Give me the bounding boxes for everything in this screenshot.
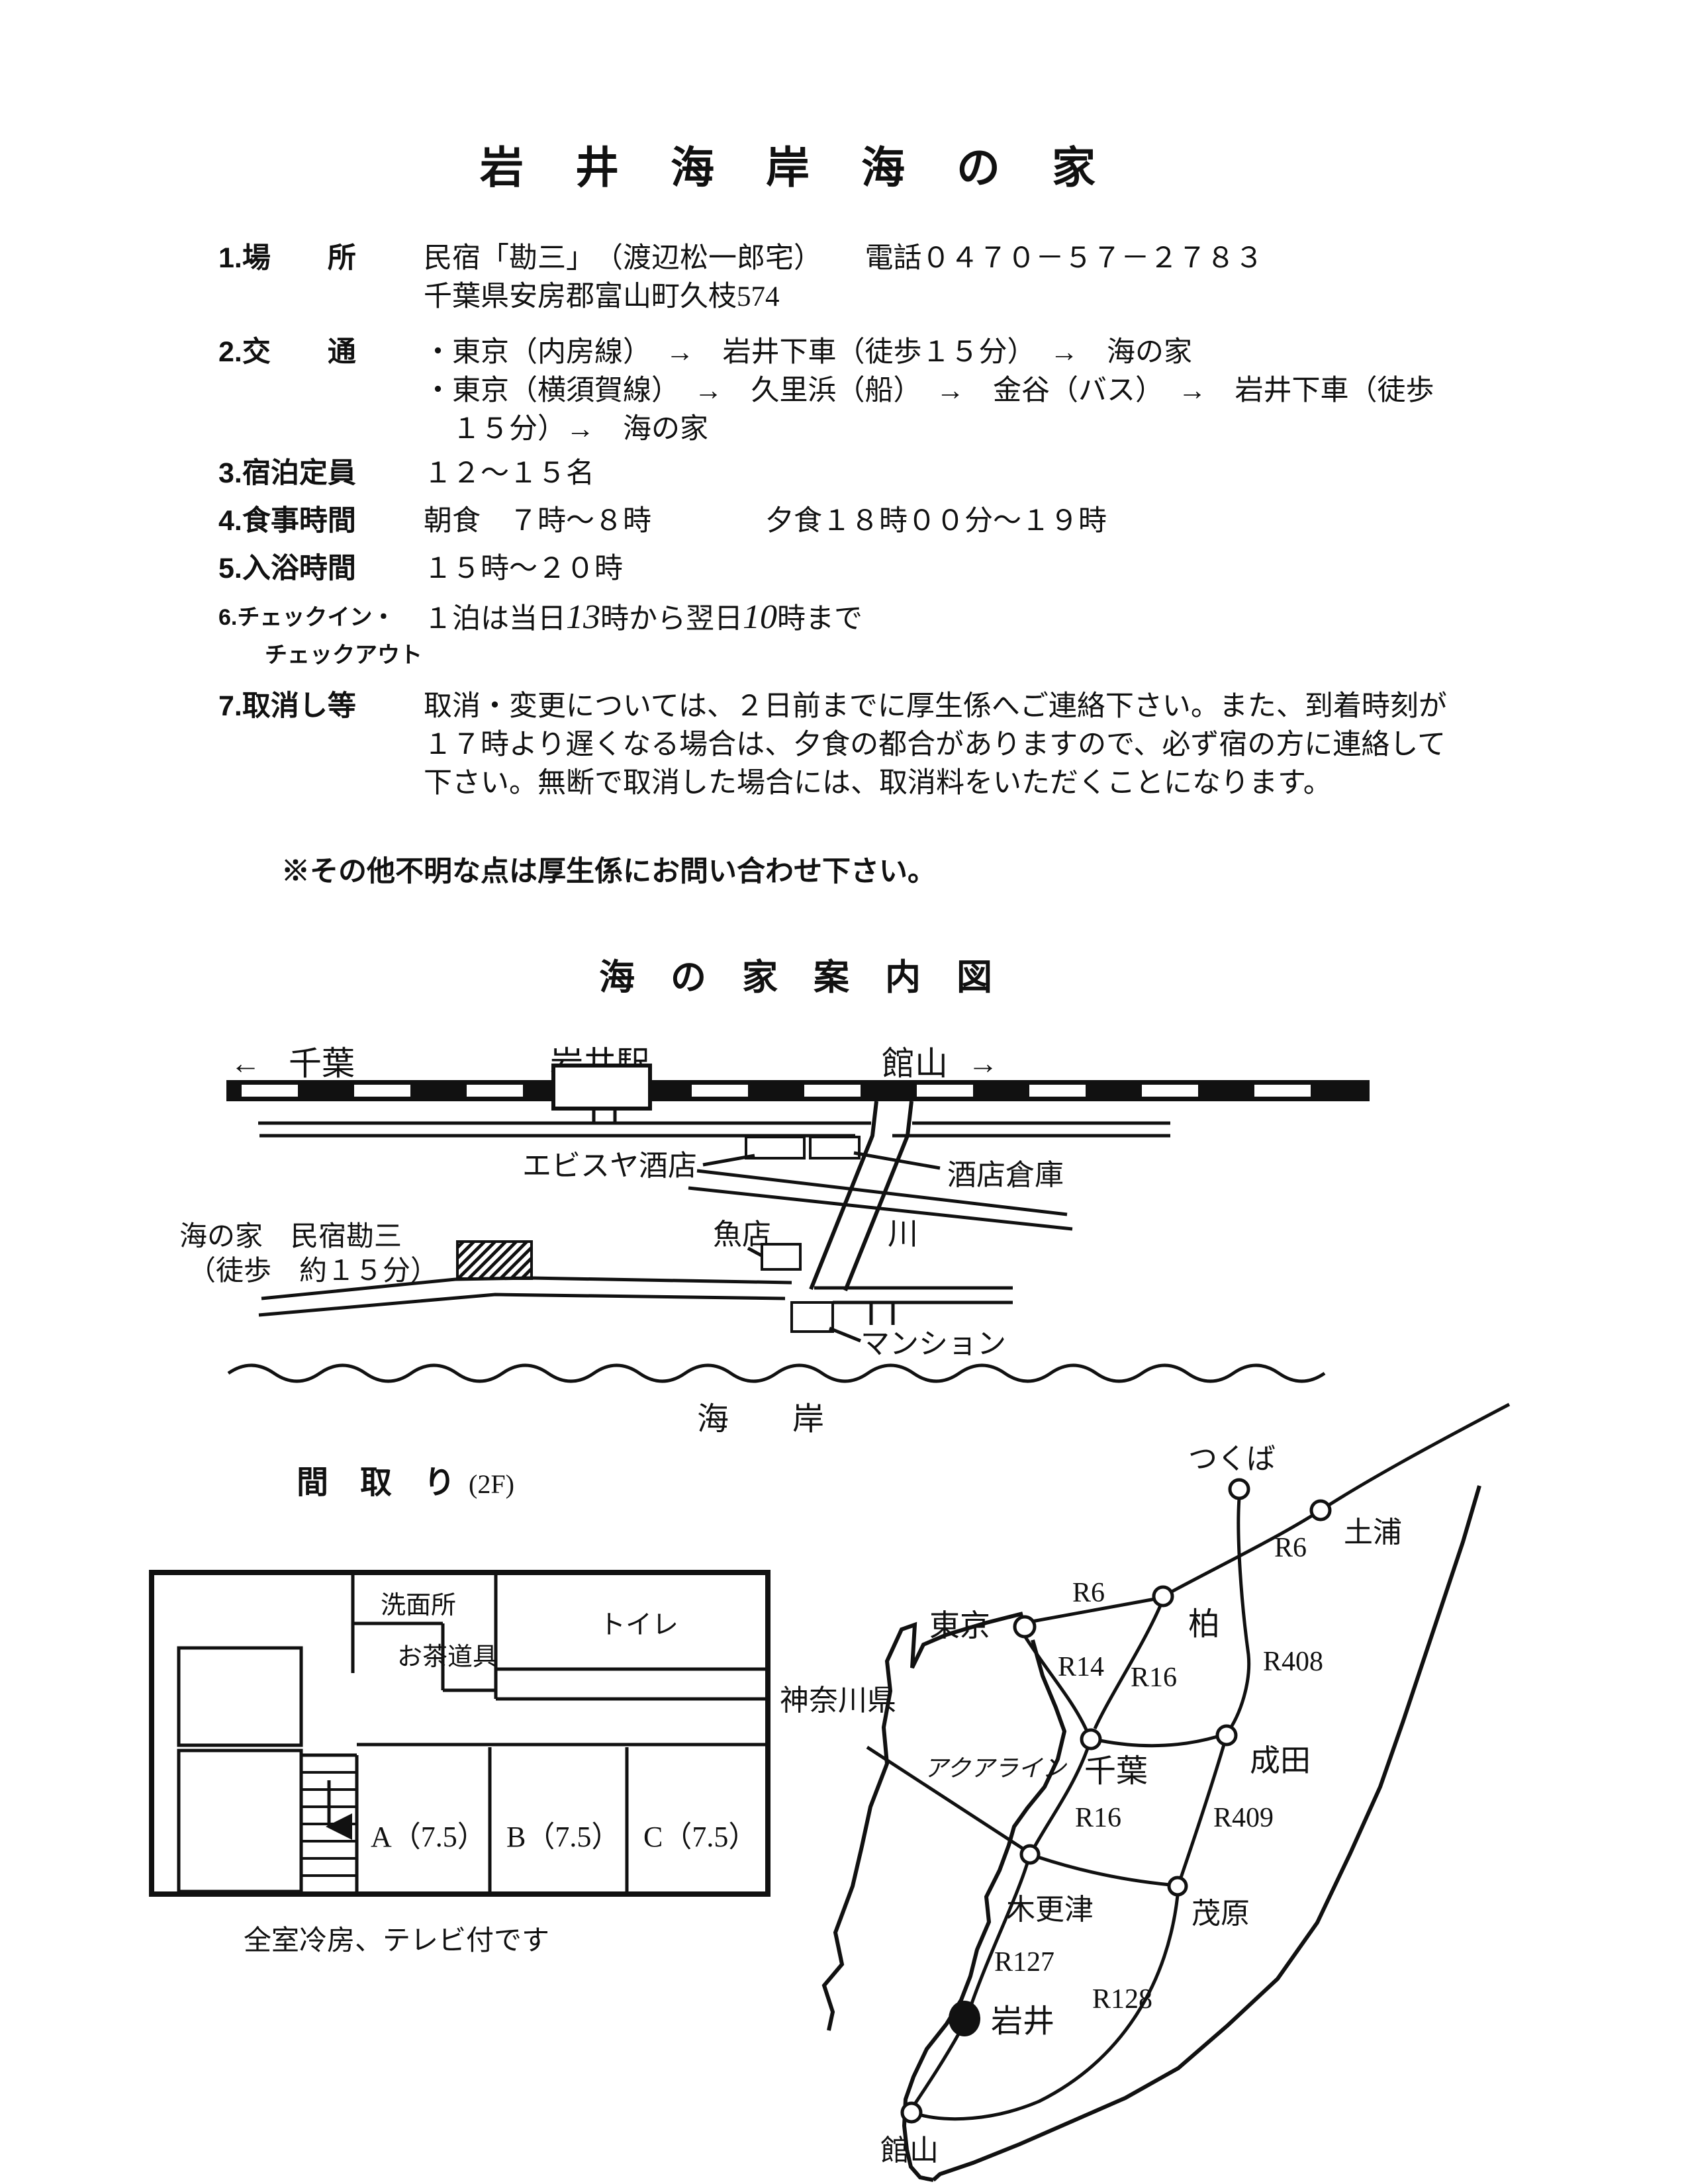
narita-label: 成田	[1250, 1744, 1311, 1778]
route-kisarazu-mobara-road	[1038, 1857, 1170, 1885]
warehouse-label: 酒店倉庫	[947, 1159, 1064, 1191]
route-r6-diagonal	[1163, 1404, 1509, 1596]
station-box	[553, 1066, 650, 1109]
tsukuba-label: つくば	[1188, 1443, 1276, 1475]
mansion-label: マンション	[861, 1328, 1006, 1360]
coast-road-lower	[259, 1295, 785, 1315]
tea-label: お茶道具	[397, 1643, 498, 1671]
node-narita	[1217, 1726, 1236, 1745]
room-a-label: A（7.5）	[371, 1821, 487, 1853]
river-label: 川	[888, 1217, 918, 1251]
guide-tateyama-label: 館山	[882, 1045, 948, 1082]
mansion-pointer	[829, 1328, 861, 1341]
kanagawa-label: 神奈川県	[780, 1684, 896, 1717]
aqualine-label: アクアライン	[924, 1755, 1067, 1782]
node-mobara	[1169, 1878, 1186, 1895]
node-tokyo	[1015, 1617, 1035, 1637]
washroom-label: 洗面所	[381, 1592, 456, 1619]
sea-wave-line	[228, 1365, 1325, 1381]
guide-map: ← 千葉 岩井駅 館山 → 川	[179, 1045, 1370, 1437]
toilet-label: トイレ	[599, 1610, 678, 1639]
drawings-layer: ← 千葉 岩井駅 館山 → 川	[0, 0, 1682, 2184]
node-tateyama	[902, 2103, 921, 2122]
minshuku-label-line2: （徒歩 約１５分）	[188, 1256, 438, 1287]
mobara-label: 茂原	[1191, 1897, 1250, 1930]
pacific-coastline	[933, 1486, 1479, 2180]
node-iwai-dot	[949, 2001, 980, 2036]
r409-label: R409	[1213, 1803, 1274, 1833]
guide-left-arrow-icon: ←	[230, 1046, 261, 1080]
route-r127-south	[913, 2032, 960, 2106]
r127-label: R127	[994, 1947, 1054, 1978]
river-left-edge	[811, 1101, 876, 1289]
tsuchiura-label: 土浦	[1344, 1516, 1402, 1549]
node-chiba	[1082, 1730, 1100, 1749]
left-room-upper	[179, 1648, 301, 1745]
r408-label: R408	[1263, 1647, 1323, 1677]
r16-upper-label: R16	[1131, 1662, 1177, 1693]
route-r408-road	[1227, 1498, 1249, 1734]
kisarazu-label: 木更津	[1006, 1893, 1094, 1926]
guide-right-arrow-icon: →	[968, 1046, 998, 1080]
floor-plan: 洗面所 お茶道具 トイレ A	[152, 1572, 768, 1894]
ebisuya-label: エビスヤ酒店	[522, 1150, 697, 1182]
minshuku-building	[457, 1242, 532, 1279]
chiba-label: 千葉	[1084, 1754, 1148, 1789]
route-r127-north	[971, 1863, 1027, 2005]
scanned-document-page: 岩 井 海 岸 海 の 家 1.場 所 民宿「勘三」 （渡辺松一郎宅） 電話０４…	[0, 0, 1682, 2184]
tokyo-label: 東京	[929, 1609, 990, 1643]
kanagawa-coastline	[824, 1614, 1023, 2030]
road-map: つくば 土浦 R6 東京 R6 柏 R14 R16 R408 神奈川県 アクアラ…	[780, 1404, 1509, 2180]
room-c-label: C（7.5）	[643, 1821, 757, 1853]
warehouse-building	[810, 1137, 859, 1158]
r128-label: R128	[1092, 1984, 1152, 2015]
coast-label: 海 岸	[697, 1402, 824, 1437]
kashiwa-label: 柏	[1188, 1607, 1220, 1642]
room-b-label: B（7.5）	[506, 1821, 620, 1853]
ebisuya-pointer	[703, 1156, 755, 1165]
r6-upper-label: R6	[1274, 1533, 1307, 1563]
fish-shop-building	[762, 1244, 800, 1269]
minshuku-label-line1: 海の家 民宿勘三	[179, 1221, 402, 1252]
left-room-lower	[179, 1751, 301, 1891]
tateyama-label: 館山	[880, 2134, 939, 2167]
node-tsuchiura	[1311, 1501, 1330, 1520]
r16-lower-label: R16	[1075, 1803, 1121, 1833]
iwai-label: 岩井	[991, 2004, 1054, 2039]
mansion-building	[792, 1302, 833, 1332]
route-r14-road	[1025, 1636, 1088, 1733]
route-chiba-narita-road	[1100, 1737, 1217, 1746]
node-kisarazu	[1021, 1846, 1039, 1863]
node-tsukuba	[1230, 1480, 1248, 1498]
r6-tokyo-label: R6	[1072, 1578, 1105, 1608]
ebisuya-building	[746, 1137, 804, 1158]
r14-label: R14	[1058, 1652, 1104, 1682]
node-kashiwa	[1154, 1587, 1172, 1606]
guide-chiba-label: 千葉	[289, 1045, 355, 1082]
